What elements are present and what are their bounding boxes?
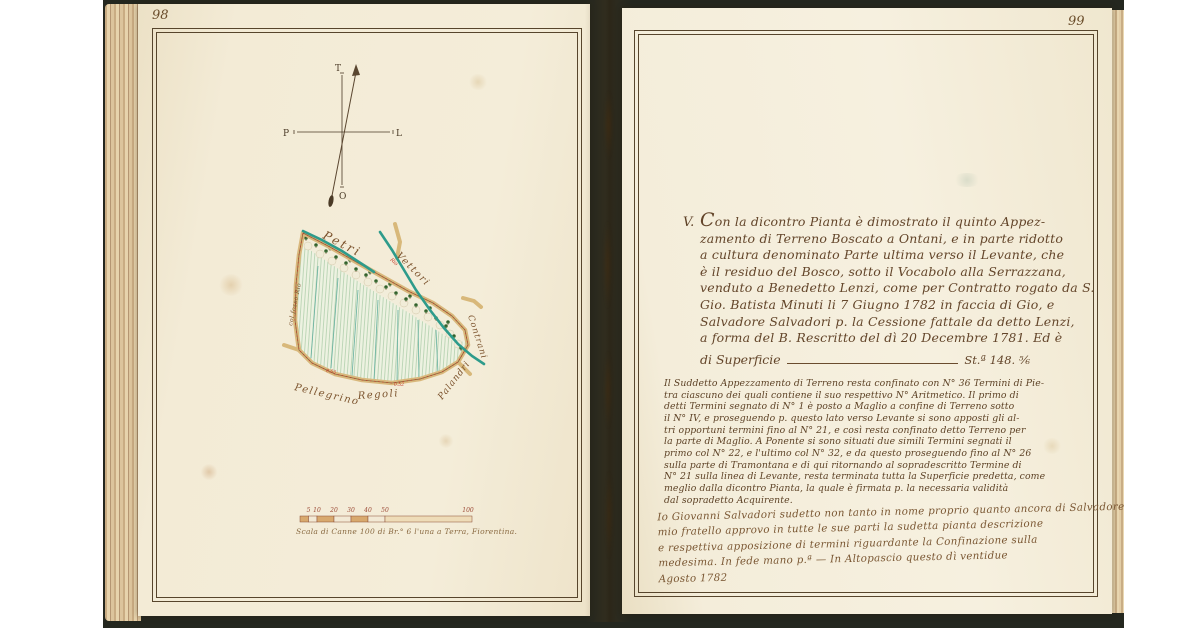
left-page: 98 T L O P — [138, 4, 590, 616]
survey-measure: 0.52 — [394, 382, 404, 388]
gutter-stain — [604, 350, 612, 430]
foxing-spot — [200, 464, 218, 480]
parcel-map: Petri Vettori Contrani Palandri Pellegri… — [270, 198, 520, 428]
magnetic-needle — [327, 64, 360, 207]
right-page-number: 99 — [1068, 14, 1085, 29]
deed-paragraph: Con la dicontro Pianta è dimostrato il q… — [700, 212, 1034, 347]
foxing-spot — [1042, 438, 1062, 454]
gutter-stain — [605, 470, 613, 560]
boundary-line: tri opportuni termini fino al N° 21, e c… — [664, 425, 1034, 437]
gutter-stain — [603, 220, 612, 310]
area-underline — [787, 353, 959, 364]
boundary-line: Il Suddetto Appezzamento di Terreno rest… — [664, 378, 1034, 390]
scale-caption: Scala di Canne 100 di Br.° 6 l'una a Ter… — [296, 527, 517, 536]
boundary-line: detti Termini segnato di N° 1 è posto a … — [664, 401, 1034, 413]
area-label: di Superficie — [700, 352, 781, 367]
deed-line: a forma del B. Rescritto del dì 20 Decem… — [700, 330, 1034, 347]
boundary-line: la parte di Maglio. A Ponente si sono si… — [664, 436, 1034, 448]
gutter-stain — [604, 90, 613, 160]
scale-tick: 20 — [329, 507, 338, 514]
boundary-line: sulla parte di Tramontana e di qui ritor… — [664, 460, 1034, 472]
scale-bar: 5 10 20 30 40 50 100 — [298, 503, 483, 529]
photo-background: 98 T L O P — [103, 0, 1124, 628]
area-value: St.ª 148. ⅚ — [964, 353, 1030, 367]
deed-line: Salvadore Salvadori p. la Cessione fatta… — [700, 314, 1034, 331]
boundary-line: tra ciascuno dei quali contiene il suo r… — [664, 390, 1034, 402]
compass-rose: T L O P — [280, 60, 405, 220]
scale-tick-labels: 5 10 20 30 40 50 100 — [307, 507, 474, 514]
deed-line: Con la dicontro Pianta è dimostrato il q… — [700, 212, 1034, 231]
boundary-line: primo col N° 22, e l'ultimo col N° 32, e… — [664, 448, 1034, 460]
scale-tick: 40 — [363, 507, 372, 514]
scale-tick: 5 — [307, 507, 311, 514]
neighbor-label-pellegrino: Pellegrino — [292, 382, 360, 408]
left-page-number: 98 — [152, 8, 169, 23]
boundary-line: il N° IV, e proseguendo p. questo lato v… — [664, 413, 1034, 425]
scale-tick: 30 — [347, 507, 355, 514]
deed-line: a cultura denominato Parte ultima verso … — [700, 247, 1034, 264]
scale-tick: 100 — [462, 507, 474, 514]
foxing-spot — [218, 274, 244, 296]
boundary-line: meglio dalla dicontro Pianta, la quale è… — [664, 483, 1034, 495]
scale-tick: 10 — [313, 507, 321, 514]
right-page: 99 V. Con la dicontro Pianta è dimostrat… — [622, 8, 1112, 614]
deed-line: Gio. Batista Minuti li 7 Giugno 1782 in … — [700, 297, 1034, 314]
foxing-spot — [952, 173, 982, 187]
compass-letter-levante: L — [396, 129, 402, 139]
area-line: di Superficie St.ª 148. ⅚ — [700, 352, 1030, 367]
foxing-spot — [438, 434, 454, 448]
boundary-line: N° 21 sulla linea di Levante, resta term… — [664, 471, 1034, 483]
deed-line: è il residuo del Bosco, sotto il Vocabol… — [700, 264, 1034, 281]
compass-letter-ponente: P — [283, 129, 289, 139]
manuscript-scan: 98 T L O P — [0, 0, 1200, 628]
boundary-note: Il Suddetto Appezzamento di Terreno rest… — [664, 378, 1034, 506]
deed-line: venduto a Benedetto Lenzi, come per Cont… — [700, 280, 1034, 297]
approval-note: Io Giovanni Salvadori sudetto non tanto … — [657, 502, 1039, 588]
left-page-stack-edge — [105, 4, 141, 621]
deed-line: zamento di Terreno Boscato a Ontani, e i… — [700, 231, 1034, 248]
foxing-spot — [468, 74, 488, 90]
neighbor-label-regoli: Regoli — [356, 388, 399, 402]
scale-tick: 50 — [381, 507, 389, 514]
section-marker: V. — [683, 215, 694, 230]
compass-letter-tramontana: T — [335, 64, 341, 74]
